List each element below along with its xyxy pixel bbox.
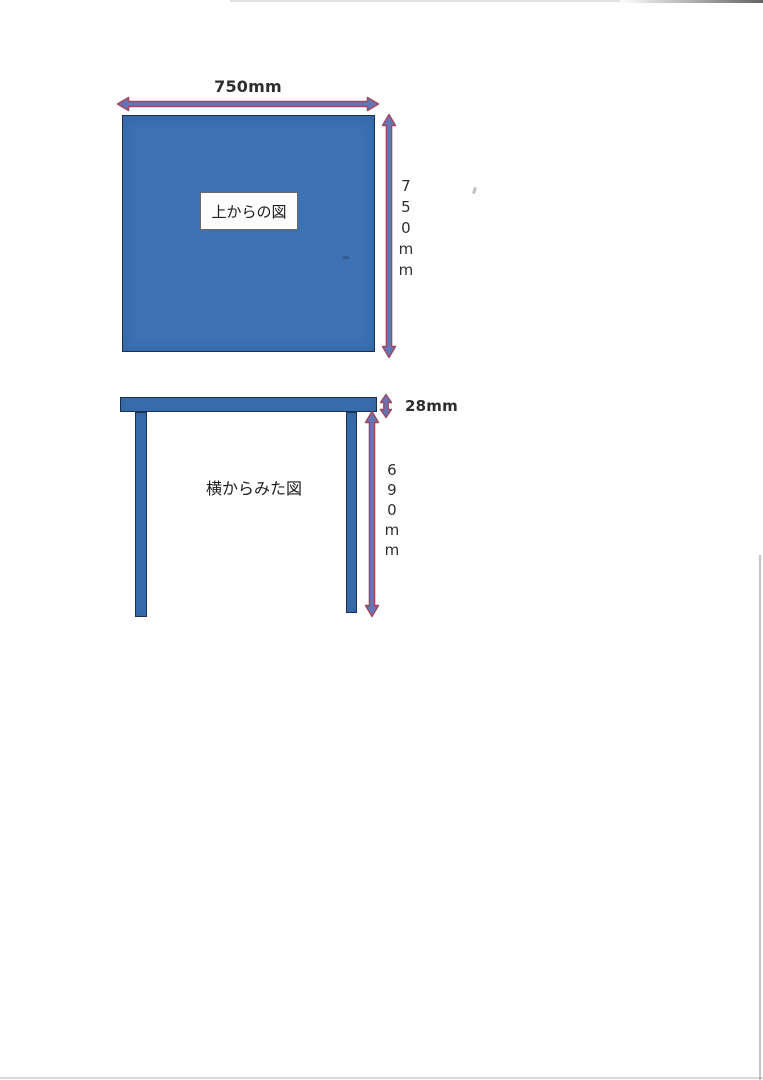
scan-artifact-bottom-edge-line — [0, 1077, 763, 1079]
scan-artifact-top-streak — [618, 0, 763, 3]
side-view-thickness-dimension-label: 28mm — [405, 397, 458, 415]
side-view-left-leg — [135, 412, 147, 617]
top-view-height-dimension-label: 7 5 0 m m — [398, 176, 414, 281]
scanned-drawing-page: 750mm 上からの図 7 5 0 m m 28mm 6 9 0 m m 横から… — [0, 0, 763, 1080]
top-view-caption-box: 上からの図 — [200, 192, 298, 230]
top-view-width-dimension-label: 750mm — [118, 77, 378, 96]
width-double-arrow-icon — [116, 95, 380, 113]
side-view-right-leg — [346, 412, 357, 613]
leg-height-double-arrow-icon — [363, 410, 381, 618]
top-view-square — [122, 115, 375, 352]
scan-artifact-right-edge-line — [759, 555, 761, 1080]
top-view-caption: 上からの図 — [211, 201, 286, 222]
scan-artifact-speck — [472, 187, 477, 195]
side-view-tabletop — [120, 397, 377, 412]
scan-artifact-top-faint-line — [230, 0, 620, 2]
side-view-leg-height-dimension-label: 6 9 0 m m — [384, 460, 400, 560]
side-view-caption: 横からみた図 — [206, 475, 302, 499]
height-double-arrow-icon — [380, 113, 398, 359]
